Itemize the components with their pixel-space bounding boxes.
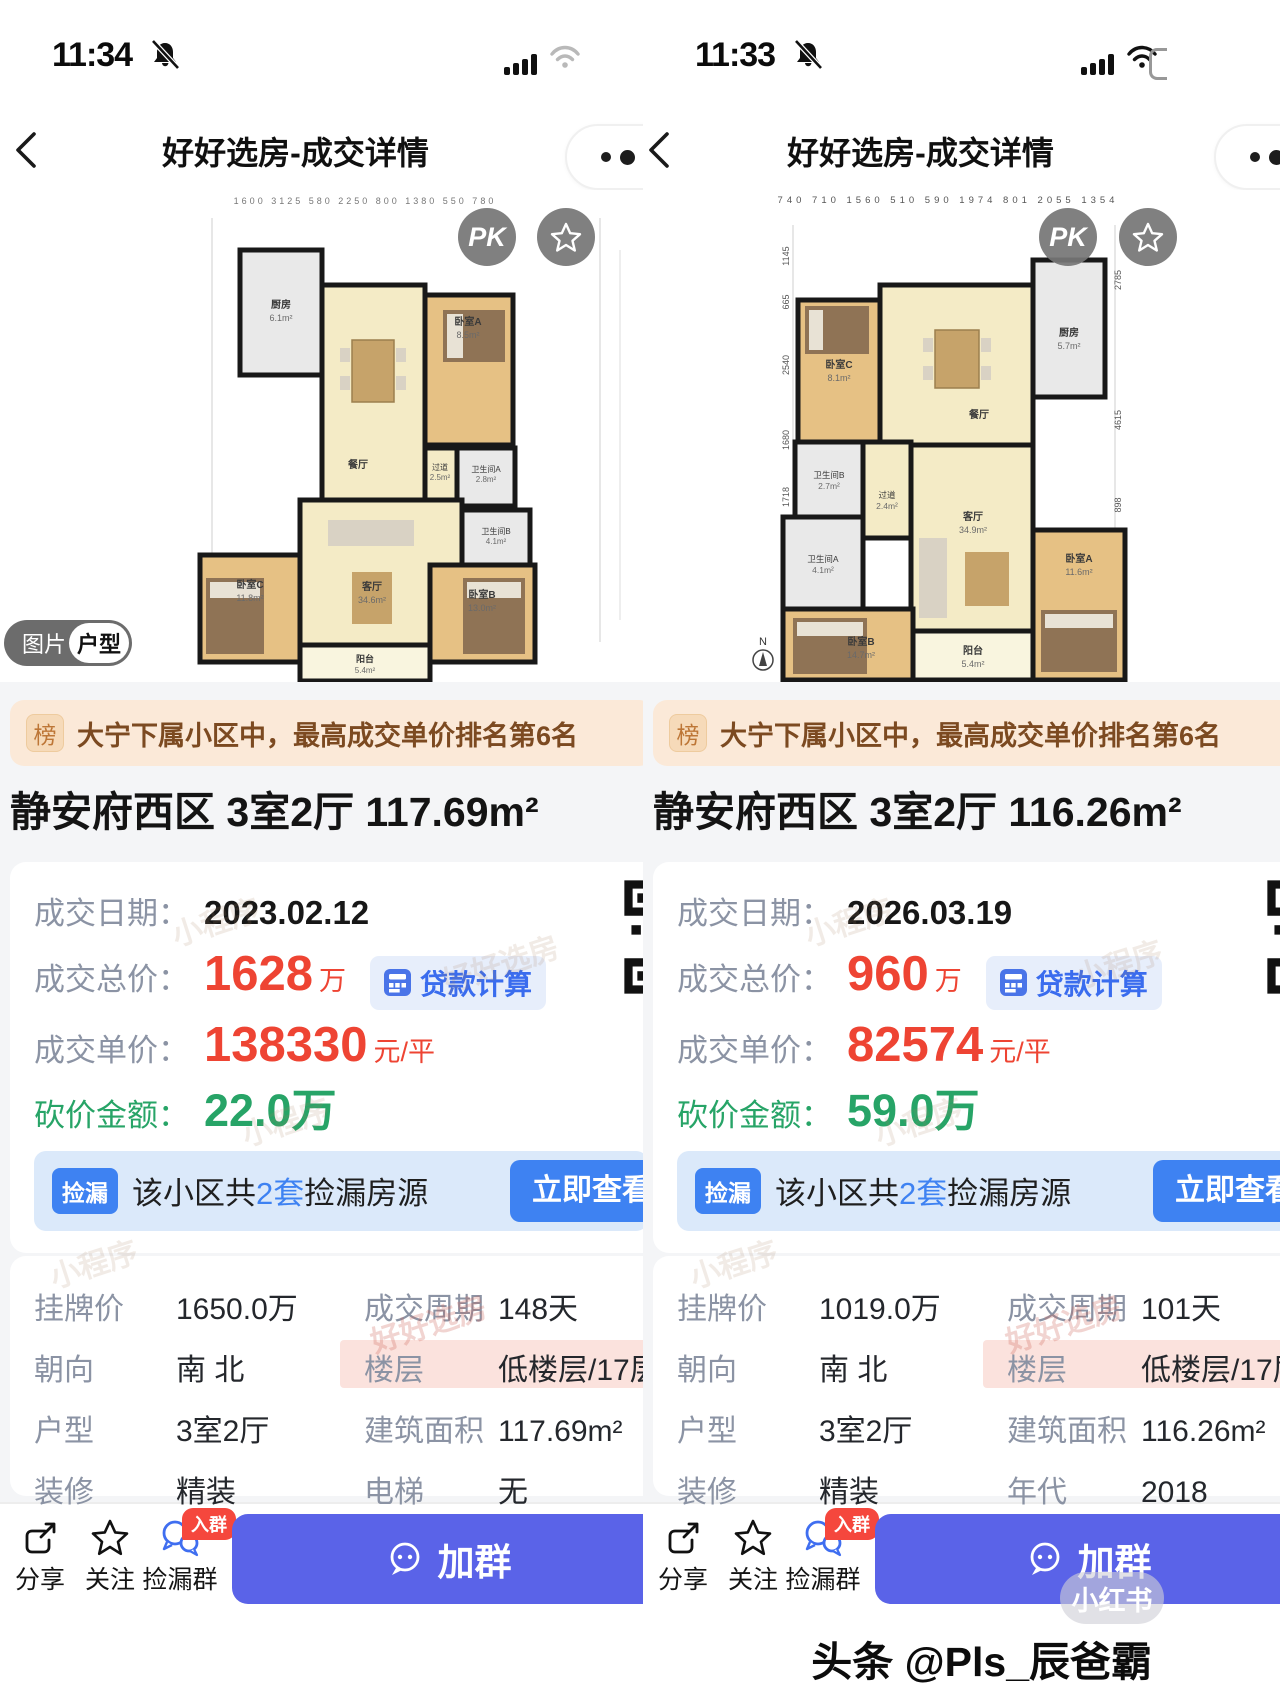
join-group-badge: 入群: [182, 1508, 236, 1540]
deal-total-unit: 万: [319, 959, 346, 998]
floorplan-dims-top: 1600 3125 580 2250 800 1380 550 780: [234, 196, 497, 206]
calculator-icon: [384, 969, 411, 996]
view-now-button[interactable]: 立即查看: [1153, 1160, 1280, 1222]
deal-unitprice-value: 82574: [847, 1020, 983, 1071]
mute-bell-icon: [791, 38, 825, 72]
leak-group-button[interactable]: 入群 捡漏群: [142, 1516, 218, 1596]
more-menu-button[interactable]: [1214, 124, 1280, 190]
deal-cut-value: 22.0万: [204, 1087, 337, 1134]
room-area: 2.7m²: [818, 481, 840, 491]
leak-text: 该小区共2套捡漏房源: [132, 1168, 428, 1213]
info-value: 1650.0万: [176, 1284, 364, 1328]
info-value: 2018: [1141, 1476, 1208, 1510]
pk-compare-button[interactable]: PK: [1039, 208, 1097, 266]
follow-label: 关注: [715, 1560, 791, 1596]
follow-label: 关注: [72, 1560, 148, 1596]
share-button[interactable]: 分享: [645, 1516, 721, 1596]
phone-panel-right: 11:33 好好选房-成交详情 740 710 1560 510 590 197…: [643, 0, 1280, 1706]
listing-title: 静安府西区 3室2厅 116.26m²: [653, 778, 1182, 838]
room-area: 14.7m²: [847, 650, 875, 660]
info-label: 成交周期: [364, 1284, 498, 1328]
info-label: 建筑面积: [1007, 1406, 1141, 1450]
info-row: 装修 精装 年代 2018: [677, 1467, 1280, 1511]
room-label: 厨房: [1059, 326, 1079, 339]
loan-calculator-button[interactable]: 贷款计算: [986, 956, 1162, 1010]
deal-unitprice-unit: 元/平: [989, 1030, 1051, 1069]
deal-date-value: 2026.03.19: [847, 894, 1012, 932]
info-card: 挂牌价 1650.0万 成交周期 148天 朝向 南 北 楼层 低楼层/17层 …: [10, 1256, 643, 1496]
author-credit: 头条 @Pls_辰爸霸: [811, 1628, 1152, 1688]
room-area: 34.6m²: [358, 595, 386, 605]
phone-panel-left: 11:34 好好选房-成交详情 1600 3125 580 2250 800 1…: [0, 0, 643, 1706]
xiaohongshu-watermark: 小红书: [1060, 1572, 1164, 1624]
room-area: 6.1m²: [269, 313, 292, 323]
compass-icon: N: [753, 636, 773, 670]
join-group-button[interactable]: 加群: [232, 1514, 643, 1604]
status-icons: [1081, 44, 1158, 75]
info-value: 116.26m²: [1141, 1415, 1266, 1449]
deal-date-row: 成交日期： 2026.03.19: [677, 888, 1280, 933]
info-label: 楼层: [364, 1345, 498, 1389]
leak-count: 2套: [899, 1176, 947, 1211]
status-icons: [504, 44, 581, 75]
room-label: 阳台: [963, 644, 983, 657]
deal-date-label: 成交日期：: [677, 888, 847, 933]
info-value: 精装: [819, 1467, 1007, 1511]
deal-unitprice-label: 成交单价：: [34, 1025, 204, 1070]
room-area: 11.6m²: [1065, 567, 1092, 577]
deal-total-row: 成交总价： 960 万 贷款计算: [677, 949, 1280, 1004]
signal-icon: [1081, 54, 1114, 75]
dot-icon: [620, 150, 635, 165]
deal-cut-label: 砍价金额：: [34, 1090, 204, 1135]
info-label: 朝向: [34, 1345, 176, 1389]
star-icon: [715, 1516, 791, 1560]
info-label: 挂牌价: [677, 1284, 819, 1328]
info-label: 装修: [677, 1467, 819, 1511]
info-value: 3室2厅: [819, 1406, 1007, 1450]
room-label: 餐厅: [347, 458, 368, 471]
deal-card: 成交日期： 2023.02.12 成交总价： 1628 万 贷款计算 成交单价：…: [10, 862, 643, 1253]
info-value: 1019.0万: [819, 1284, 1007, 1328]
info-row: 户型 3室2厅 建筑面积 117.69m²: [34, 1406, 643, 1450]
room-label: 卧室A: [1065, 552, 1092, 565]
sofa: [328, 520, 414, 546]
info-row: 装修 精装 电梯 无: [34, 1467, 643, 1511]
rank-text: 大宁下属小区中，最高成交单价排名第6名: [77, 714, 578, 753]
favorite-button[interactable]: [537, 208, 595, 266]
room-area: 4.1m²: [812, 565, 834, 575]
leak-text: 该小区共2套捡漏房源: [775, 1168, 1071, 1213]
leak-count: 2套: [256, 1176, 304, 1211]
room-area: 8.1m²: [827, 373, 850, 383]
leak-group-button[interactable]: 入群 捡漏群: [785, 1516, 861, 1596]
room-area: 11.8m²: [236, 593, 263, 603]
info-label: 挂牌价: [34, 1284, 176, 1328]
deal-cut-value: 59.0万: [847, 1087, 980, 1134]
info-row: 挂牌价 1650.0万 成交周期 148天: [34, 1284, 643, 1328]
room-label: 阳台: [356, 653, 374, 664]
chat-smiley-icon: [384, 1538, 426, 1580]
pk-compare-button[interactable]: PK: [458, 208, 516, 266]
info-row: 挂牌价 1019.0万 成交周期 101天: [677, 1284, 1280, 1328]
floorplan-image[interactable]: 740 710 1560 510 590 1974 801 2055 1354 …: [643, 190, 1280, 682]
info-label: 户型: [34, 1406, 176, 1450]
dim-label: 898: [1113, 497, 1123, 512]
bottom-tabbar: 分享 关注 入群 捡漏群 加群: [643, 1502, 1280, 1626]
media-toggle[interactable]: 图片 户型: [4, 620, 132, 666]
sofa: [919, 538, 947, 618]
wifi-icon: [549, 44, 581, 75]
composite-screenshot: 11:34 好好选房-成交详情 1600 3125 580 2250 800 1…: [0, 0, 1280, 1706]
deal-total-label: 成交总价：: [677, 954, 847, 999]
rank-banner: 榜 大宁下属小区中，最高成交单价排名第6名: [653, 700, 1280, 766]
deal-date-value: 2023.02.12: [204, 894, 369, 932]
info-card: 挂牌价 1019.0万 成交周期 101天 朝向 南 北 楼层 低楼层/17层 …: [653, 1256, 1280, 1496]
leak-text-pre: 该小区共: [132, 1176, 256, 1211]
tab-floorplan[interactable]: 户型: [69, 623, 129, 663]
room-area: 2.5m²: [430, 473, 451, 482]
room-label: 卧室C: [236, 578, 263, 591]
calculator-icon: [1000, 969, 1027, 996]
info-row: 朝向 南 北 楼层 低楼层/17层: [677, 1345, 1280, 1389]
page-title: 好好选房-成交详情: [643, 128, 1239, 174]
room-label: 卧室B: [468, 588, 495, 601]
deal-date-row: 成交日期： 2023.02.12: [34, 888, 643, 933]
room-label: 餐厅: [968, 408, 989, 421]
room-label: 卧室A: [454, 315, 481, 328]
info-value: 无: [498, 1467, 528, 1511]
dim-label: 1680: [781, 430, 791, 450]
room-area: 4.1m²: [486, 537, 507, 546]
share-label: 分享: [2, 1560, 78, 1596]
info-value: 南 北: [176, 1345, 364, 1389]
join-group-badge: 入群: [825, 1508, 879, 1540]
bottom-tabbar: 分享 关注 入群 捡漏群 加群: [0, 1502, 643, 1626]
battery-icon: [1149, 48, 1167, 80]
star-icon: [1131, 220, 1165, 254]
room-label: 客厅: [361, 580, 382, 593]
deal-cut-label: 砍价金额：: [677, 1090, 847, 1135]
floorplan-image[interactable]: 1600 3125 580 2250 800 1380 550 780: [0, 190, 643, 682]
room-label: 卫生间A: [471, 464, 501, 474]
info-value: 3室2厅: [176, 1406, 364, 1450]
info-row: 户型 3室2厅 建筑面积 116.26m²: [677, 1406, 1280, 1450]
follow-button[interactable]: 关注: [715, 1516, 791, 1596]
listing-title: 静安府西区 3室2厅 117.69m²: [10, 778, 539, 838]
rank-badge-icon: 榜: [669, 714, 707, 752]
star-icon: [72, 1516, 148, 1560]
info-label: 装修: [34, 1467, 176, 1511]
info-value: 低楼层/17层: [498, 1345, 643, 1389]
floorplan-dims-top: 740 710 1560 510 590 1974 801 2055 1354: [778, 195, 1119, 206]
share-button[interactable]: 分享: [2, 1516, 78, 1596]
deal-total-label: 成交总价：: [34, 954, 204, 999]
room-area: 13.0m²: [468, 603, 496, 613]
room-area: 5.4m²: [961, 659, 984, 669]
leak-banner: 捡漏 该小区共2套捡漏房源 立即查看: [34, 1151, 643, 1231]
room-label: 卫生间B: [813, 470, 845, 480]
compass-label: N: [759, 636, 767, 648]
room-label: 过道: [432, 462, 448, 472]
room-area: 2.8m²: [476, 475, 497, 484]
leak-text-post: 捡漏房源: [304, 1176, 428, 1211]
deal-unitprice-row: 成交单价： 138330 元/平: [34, 1020, 643, 1071]
room-label: 卫生间B: [481, 526, 510, 536]
info-value: 117.69m²: [498, 1415, 623, 1449]
info-value: 低楼层/17层: [1141, 1345, 1280, 1389]
dim-label: 2540: [781, 355, 791, 375]
leak-group-label: 捡漏群: [142, 1560, 218, 1596]
rank-text: 大宁下属小区中，最高成交单价排名第6名: [720, 714, 1221, 753]
status-time: 11:34: [52, 36, 132, 75]
page-title: 好好选房-成交详情: [0, 128, 617, 174]
chat-smiley-icon: [1024, 1538, 1066, 1580]
info-value: 148天: [498, 1284, 578, 1328]
info-label: 年代: [1007, 1467, 1141, 1511]
room-label: 客厅: [962, 510, 983, 523]
room-label: 卧室B: [847, 635, 874, 648]
leak-badge: 捡漏: [695, 1168, 761, 1214]
follow-button[interactable]: 关注: [72, 1516, 148, 1596]
leak-text-post: 捡漏房源: [947, 1176, 1071, 1211]
share-icon: [645, 1516, 721, 1560]
dot-icon: [1269, 150, 1280, 165]
share-icon: [2, 1516, 78, 1560]
loan-calculator-button[interactable]: 贷款计算: [370, 956, 546, 1010]
dining-table: [352, 340, 394, 402]
info-label: 电梯: [364, 1467, 498, 1511]
deal-total-unit: 万: [935, 959, 962, 998]
chat-bubbles-icon: 入群: [142, 1516, 218, 1560]
room-area: 34.9m²: [959, 525, 987, 535]
chat-bubbles-icon: 入群: [785, 1516, 861, 1560]
dot-icon: [601, 152, 611, 162]
share-label: 分享: [645, 1560, 721, 1596]
signal-icon: [504, 54, 537, 75]
info-label: 成交周期: [1007, 1284, 1141, 1328]
loan-calculator-label: 贷款计算: [420, 963, 532, 1003]
info-value: 101天: [1141, 1284, 1221, 1328]
room-label: 厨房: [271, 298, 291, 311]
info-value: 南 北: [819, 1345, 1007, 1389]
deal-cut-row: 砍价金额： 22.0万: [34, 1087, 643, 1135]
coffee-table: [965, 552, 1009, 606]
mute-bell-icon: [148, 38, 182, 72]
view-now-button[interactable]: 立即查看: [510, 1160, 643, 1222]
rank-badge-icon: 榜: [26, 714, 64, 752]
status-time: 11:33: [695, 36, 775, 75]
info-label: 楼层: [1007, 1345, 1141, 1389]
leak-badge: 捡漏: [52, 1168, 118, 1214]
deal-total-row: 成交总价： 1628 万 贷款计算: [34, 949, 643, 1004]
deal-total-value: 1628: [204, 949, 313, 1000]
dining-table: [935, 330, 979, 388]
dim-label: 665: [781, 294, 791, 309]
deal-date-label: 成交日期：: [34, 888, 204, 933]
join-group-label: 加群: [438, 1532, 512, 1586]
deal-unitprice-value: 138330: [204, 1020, 368, 1071]
star-icon: [549, 220, 583, 254]
leak-text-pre: 该小区共: [775, 1176, 899, 1211]
deal-unitprice-unit: 元/平: [374, 1030, 436, 1069]
favorite-button[interactable]: [1119, 208, 1177, 266]
leak-banner: 捡漏 该小区共2套捡漏房源 立即查看: [677, 1151, 1280, 1231]
dim-label: 1718: [781, 487, 791, 507]
dim-label: 4615: [1113, 410, 1123, 430]
room-area: 5.4m²: [355, 666, 376, 675]
info-label: 户型: [677, 1406, 819, 1450]
info-label: 朝向: [677, 1345, 819, 1389]
deal-total-value: 960: [847, 949, 929, 1000]
loan-calculator-label: 贷款计算: [1036, 963, 1148, 1003]
room-label: 卫生间A: [807, 554, 839, 564]
dim-label: 1145: [781, 246, 791, 265]
deal-cut-row: 砍价金额： 59.0万: [677, 1087, 1280, 1135]
room-label: 过道: [878, 490, 896, 500]
tab-image[interactable]: 图片: [22, 627, 66, 659]
deal-card: 成交日期： 2026.03.19 成交总价： 960 万 贷款计算 成交单价： …: [653, 862, 1280, 1253]
dot-icon: [1250, 152, 1260, 162]
info-label: 建筑面积: [364, 1406, 498, 1450]
info-value: 精装: [176, 1467, 364, 1511]
more-menu-button[interactable]: [565, 124, 643, 190]
dim-label: 2785: [1113, 270, 1123, 290]
deal-unitprice-label: 成交单价：: [677, 1025, 847, 1070]
rank-banner: 榜 大宁下属小区中，最高成交单价排名第6名: [10, 700, 643, 766]
room-area: 2.4m²: [876, 501, 898, 511]
deal-unitprice-row: 成交单价： 82574 元/平: [677, 1020, 1280, 1071]
info-row: 朝向 南 北 楼层 低楼层/17层: [34, 1345, 643, 1389]
room-area: 8.5m²: [456, 330, 479, 340]
leak-group-label: 捡漏群: [785, 1560, 861, 1596]
room-label: 卧室C: [825, 358, 852, 371]
room-area: 5.7m²: [1057, 341, 1080, 351]
